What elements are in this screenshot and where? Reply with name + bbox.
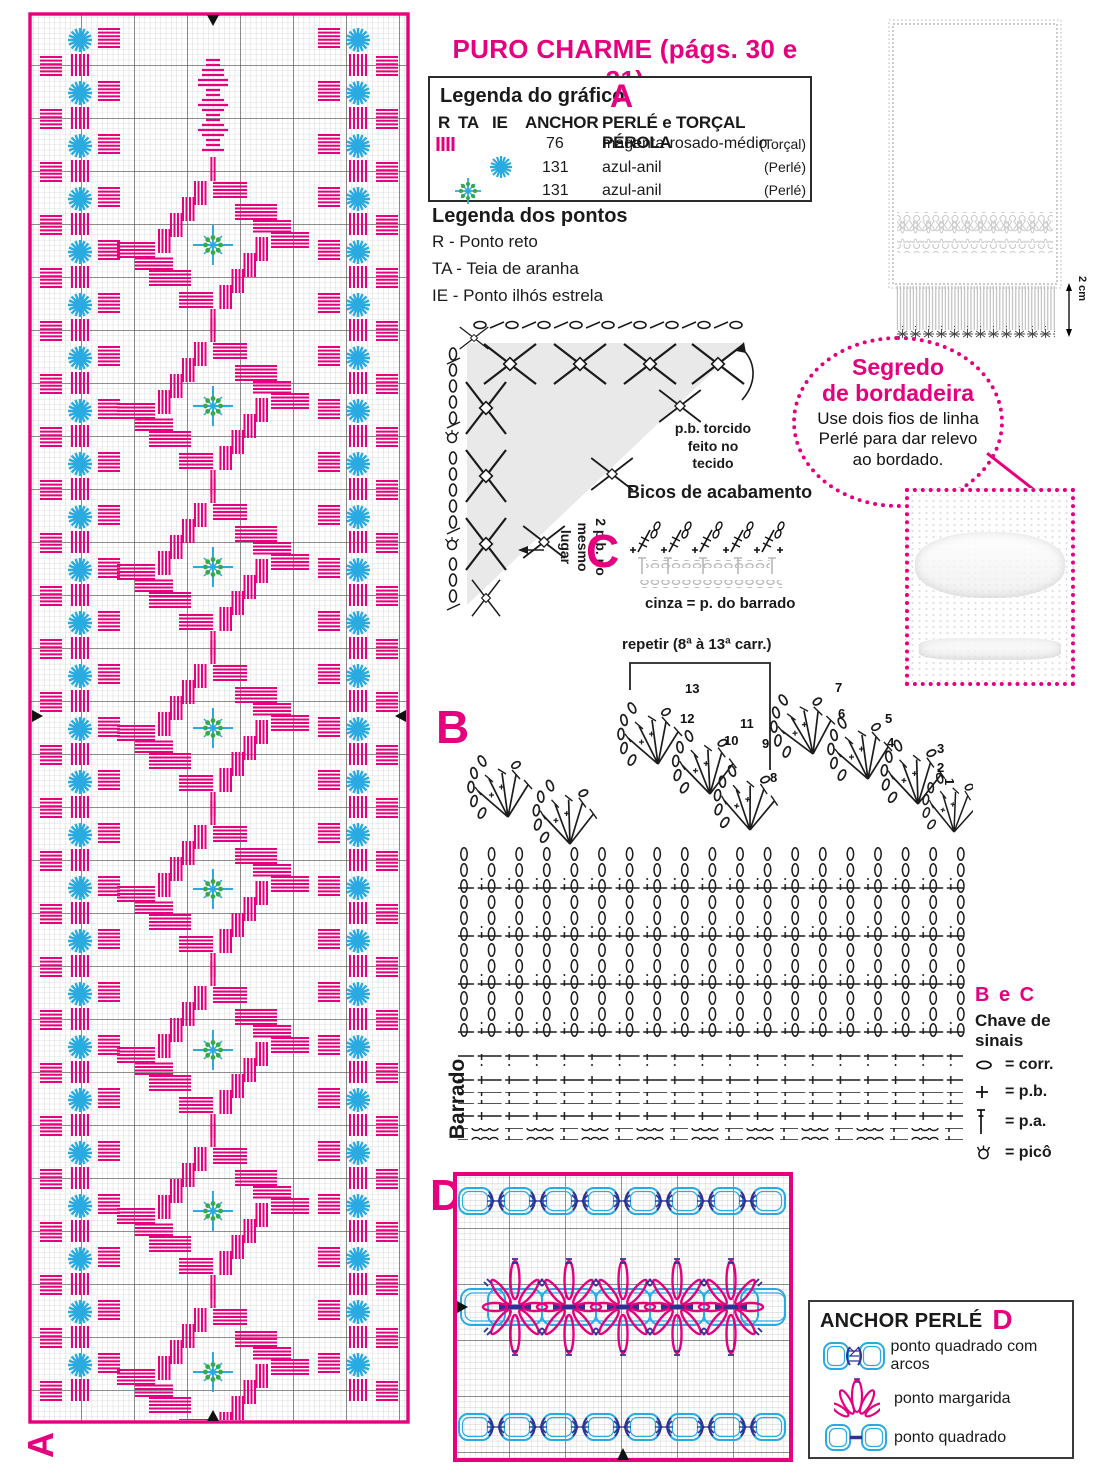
stitch-legend-item: IE - Ponto ilhós estrela [432,286,603,306]
stitch-legend-item: R - Ponto reto [432,232,538,252]
symbol-key-row: = p.b. [975,1078,1099,1105]
svg-text:8: 8 [770,770,777,785]
thread-type: (Perlé) [736,182,806,198]
anchor-perle-badge: D [992,1304,1012,1336]
col-header-anchor: ANCHOR [525,113,598,133]
fringe-measure-arrow [1066,283,1072,337]
tip-title: Segredo de bordadeira [796,354,1000,407]
chart-b-badge: B [436,704,469,750]
legend-title: Legenda do gráfico [440,85,624,108]
note-pb-torcido: p.b. torcido feito no tecido [660,420,766,473]
anchor-legend-label: ponto quadrado [894,1429,1006,1447]
fringe-measure-label: 2 cm [1076,276,1088,312]
anchor-legend-label: ponto margarida [894,1390,1011,1408]
svg-text:9: 9 [762,736,769,751]
symbol-key-row: = picô [975,1139,1099,1166]
thread-type: (Torçal) [736,136,806,152]
anchor-legend-row: ponto quadrado [820,1424,1072,1452]
cinza-note: cinza = p. do barrado [645,595,795,612]
chart-a-canvas [28,12,410,1442]
chart-b-side-label: Barrado [446,1044,472,1154]
square-stitch-icon [825,1424,889,1452]
symbol-key-label: = picô [1005,1144,1052,1162]
stitch-legend-item: TA - Teia de aranha [432,259,579,279]
picot-icon [975,1145,992,1160]
chain-icon [975,1060,993,1070]
square-with-arcs-icon [823,1341,887,1372]
symbol-key: B e C Chave de sinais = corr. = p.b. = p… [975,984,1099,1166]
stitch-legend-title: Legenda dos pontos [432,205,628,228]
chart-d-canvas [453,1172,793,1462]
chart-b-fans [468,690,973,849]
symbol-key-label: = p.b. [1005,1083,1047,1101]
symbol-key-title: Chave de sinais [975,1011,1099,1051]
legend-badge-a: A [610,83,633,109]
towel-band-row [897,244,1053,253]
photo-stitch-band [915,532,1065,598]
svg-text:5: 5 [885,711,892,726]
anchor-number: 131 [542,182,569,200]
svg-text:4: 4 [887,735,895,750]
treble-icon [975,1107,987,1137]
col-header-ta: TA [458,113,479,133]
chart-b-row-numbers: 13 12 11 10 9 8 7 6 5 4 3 2 1 [680,680,957,785]
symbol-key-badge: B e C [975,984,1099,1007]
anchor-number: 76 [546,135,564,153]
thread-color-name: azul-anil [602,182,662,200]
top-edge-chains [474,322,742,329]
anchor-number: 131 [542,159,569,177]
svg-text:10: 10 [724,733,738,748]
chart-b-mesh [458,848,964,1140]
daisy-stitch-icon [834,1376,880,1422]
tip-body: Use dois fios de linha Perlé para dar re… [796,409,1000,470]
symbol-key-label: = p.a. [1005,1113,1046,1131]
towel-schematic [883,16,1093,351]
svg-text:13: 13 [685,681,699,696]
symbol-key-label: = corr. [1005,1056,1053,1074]
towel-band-daisies [897,221,1053,243]
anchor-perle-box: ANCHOR PERLÉ D ponto quadrado com arcos [808,1300,1074,1459]
anchor-legend-row: ponto margarida [820,1376,1072,1422]
bicos-title: Bicos de acabamento [627,482,812,503]
thread-color-name: azul-anil [602,159,662,177]
anchor-legend-row: ponto quadrado com arcos [820,1338,1072,1374]
left-edge-chains [446,348,461,610]
svg-text:2: 2 [937,760,944,775]
repeat-label: repetir (8ª à 13ª carr.) [622,636,772,653]
straight-stitch-bars-icon [436,135,456,153]
thread-type: (Perlé) [736,159,806,175]
bicos-diagram [630,521,785,588]
corner-badge-c: C [586,528,619,574]
svg-text:7: 7 [835,680,842,695]
anchor-legend-label: ponto quadrado com arcos [891,1338,1072,1374]
svg-text:1: 1 [942,778,957,785]
col-header-r: R [438,113,450,133]
towel-band-row [897,212,1053,221]
svg-text:3: 3 [937,741,944,756]
chart-b-canvas: 13 12 11 10 9 8 7 6 5 4 3 2 1 [448,642,973,1167]
tip-bubble: Segredo de bordadeira Use dois fios de l… [792,336,1004,508]
symbol-key-row: = p.a. [975,1105,1099,1139]
chart-legend-box: Legenda do gráfico A R TA IE ANCHOR PERL… [428,76,812,202]
col-header-ie: IE [492,113,508,133]
anchor-perle-title: ANCHOR PERLÉ [820,1310,982,1333]
eyelet-starburst-icon [488,154,514,180]
svg-text:11: 11 [740,716,754,731]
svg-text:12: 12 [680,711,694,726]
svg-text:6: 6 [838,706,845,721]
callout-arrow [740,347,753,400]
towel-fringe [895,286,1055,330]
symbol-key-row: = corr. [975,1051,1099,1078]
plus-icon [975,1085,989,1099]
chart-a-corner-label: A [20,1418,60,1458]
magazine-page: A PURO CHARME (págs. 30 e 31) Legenda do… [0,0,1100,1475]
towel-fringe-picots [895,326,1055,338]
spider-web-star-icon [454,177,482,205]
